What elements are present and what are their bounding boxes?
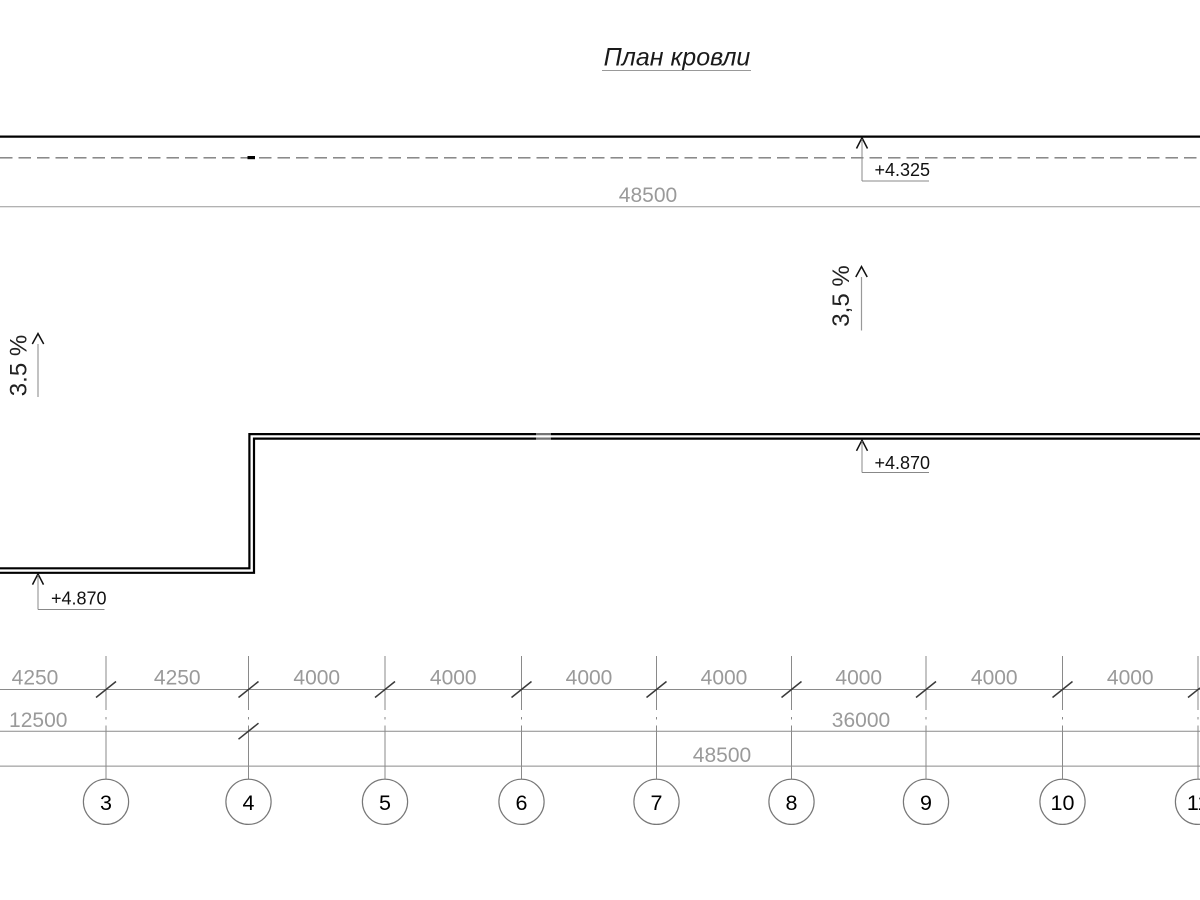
svg-text:3.5 %: 3.5 % (6, 335, 33, 396)
svg-text:48500: 48500 (619, 184, 677, 207)
svg-text:12500: 12500 (9, 709, 67, 732)
svg-text:4000: 4000 (430, 667, 477, 690)
svg-text:План кровли: План кровли (604, 44, 751, 72)
svg-text:4250: 4250 (154, 667, 201, 690)
svg-text:4000: 4000 (566, 667, 613, 690)
svg-text:9: 9 (920, 791, 932, 815)
svg-text:4: 4 (243, 791, 255, 815)
svg-text:+4.870: +4.870 (51, 588, 107, 608)
svg-text:48500: 48500 (693, 744, 751, 767)
svg-text:4250: 4250 (12, 667, 59, 690)
svg-text:4000: 4000 (701, 667, 748, 690)
svg-text:+4.325: +4.325 (875, 160, 931, 180)
svg-text:4000: 4000 (971, 667, 1018, 690)
svg-text:+4.870: +4.870 (875, 453, 931, 473)
svg-text:4000: 4000 (1107, 667, 1154, 690)
svg-text:11: 11 (1187, 791, 1200, 815)
svg-text:7: 7 (651, 791, 663, 815)
svg-text:36000: 36000 (832, 709, 890, 732)
svg-text:3,5 %: 3,5 % (828, 265, 855, 326)
svg-text:6: 6 (516, 791, 528, 815)
svg-text:8: 8 (786, 791, 798, 815)
svg-text:3: 3 (100, 791, 112, 815)
svg-text:4000: 4000 (293, 667, 340, 690)
svg-text:4000: 4000 (835, 667, 882, 690)
svg-text:5: 5 (379, 791, 391, 815)
svg-text:10: 10 (1051, 791, 1075, 815)
